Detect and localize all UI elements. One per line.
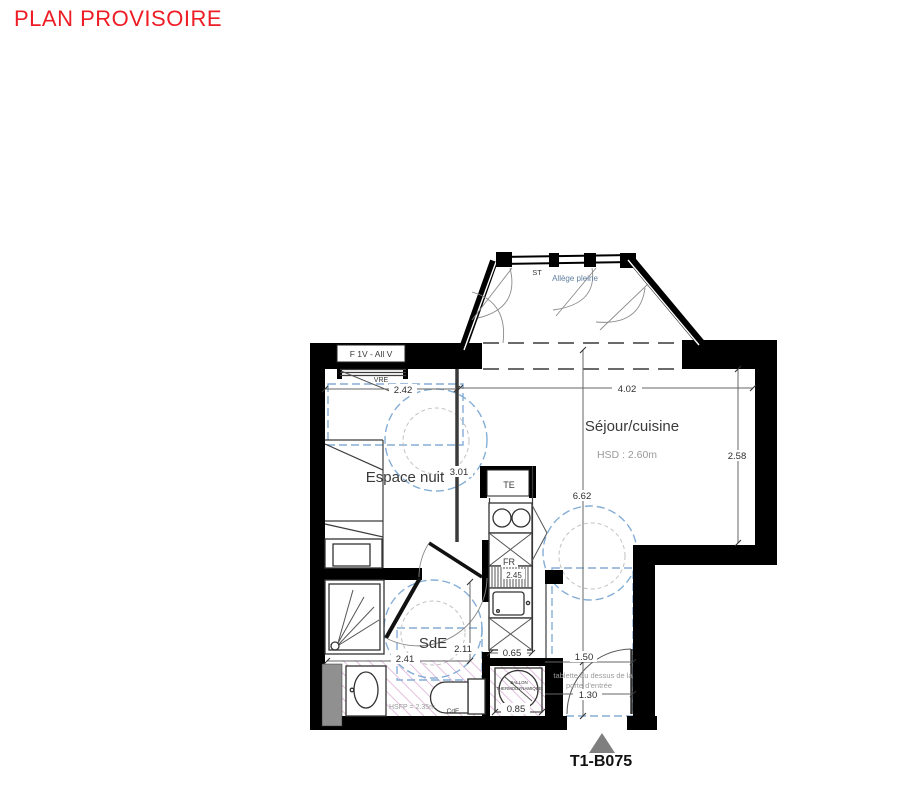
dim-sde-width: 2.41 [396, 654, 415, 665]
espace-nuit-door-leaf [429, 543, 482, 577]
dim-entry-lower: 1.30 [579, 690, 598, 701]
dim-sejour-depth: 2.58 [728, 451, 747, 462]
wall-bottom-stub [627, 716, 657, 730]
st-label: ST [532, 268, 542, 277]
ballon-label-2: THERMODYNAMIQUE [496, 686, 542, 691]
sejour-ceiling-height: HSD : 2.60m [597, 449, 657, 461]
tablette-note-1: tablette au dessus de la [553, 671, 633, 680]
wall-right-upper [755, 362, 777, 565]
wall-stub-hall [545, 570, 563, 584]
wall-bottom [310, 716, 567, 730]
te-label: TE [503, 480, 515, 490]
shower [325, 580, 384, 654]
wall-right-lower [633, 545, 655, 730]
fridge-label: FR [503, 557, 515, 567]
dim-espace-nuit-width: 2.42 [394, 385, 413, 396]
room-label-sde: SdE [419, 635, 447, 652]
window-swing-line [341, 371, 397, 394]
tablette-note-2: porte d'entrée [566, 681, 612, 690]
dim-kitchen-width: 0.65 [503, 648, 522, 659]
dropped-ceiling-note: HSFP = 2.35m [389, 704, 435, 711]
closet [325, 440, 383, 568]
dim-sde-length: 2.11 [454, 644, 472, 655]
dim-kitchen-length: 2.45 [506, 571, 522, 580]
wall-niche-right [545, 658, 563, 716]
dim-ballon-width: 0.85 [507, 704, 526, 715]
wc-tank [468, 679, 485, 714]
ballon-label-1: BALLON [510, 680, 527, 685]
dim-espace-nuit-length: 3.01 [450, 467, 469, 478]
window-type-label: F 1V - All V [350, 349, 393, 359]
wall-sde-partition [310, 568, 422, 580]
wall-niche-top [482, 658, 545, 666]
cde-label: CdE [447, 708, 460, 715]
floor-plan-drawing: F 1V - All V VRE ST Allège pleine 2.42 4… [0, 0, 913, 800]
entry-marker-triangle [589, 733, 615, 753]
room-label-sejour: Séjour/cuisine [585, 418, 679, 435]
vre-label: VRE [374, 377, 389, 384]
dim-sejour-width: 4.02 [618, 384, 637, 395]
wall-te-left [480, 468, 487, 498]
sde-door-leaf [386, 578, 420, 638]
allege-label: Allège pleine [552, 274, 598, 283]
dim-total-length: 6.62 [573, 491, 592, 502]
duct [322, 664, 342, 726]
floor-plan-page: PLAN PROVISOIRE [0, 0, 913, 800]
room-label-espace-nuit: Espace nuit [366, 469, 445, 486]
unit-number: T1-B075 [570, 753, 632, 770]
dim-entry-upper: 1.50 [575, 652, 594, 663]
